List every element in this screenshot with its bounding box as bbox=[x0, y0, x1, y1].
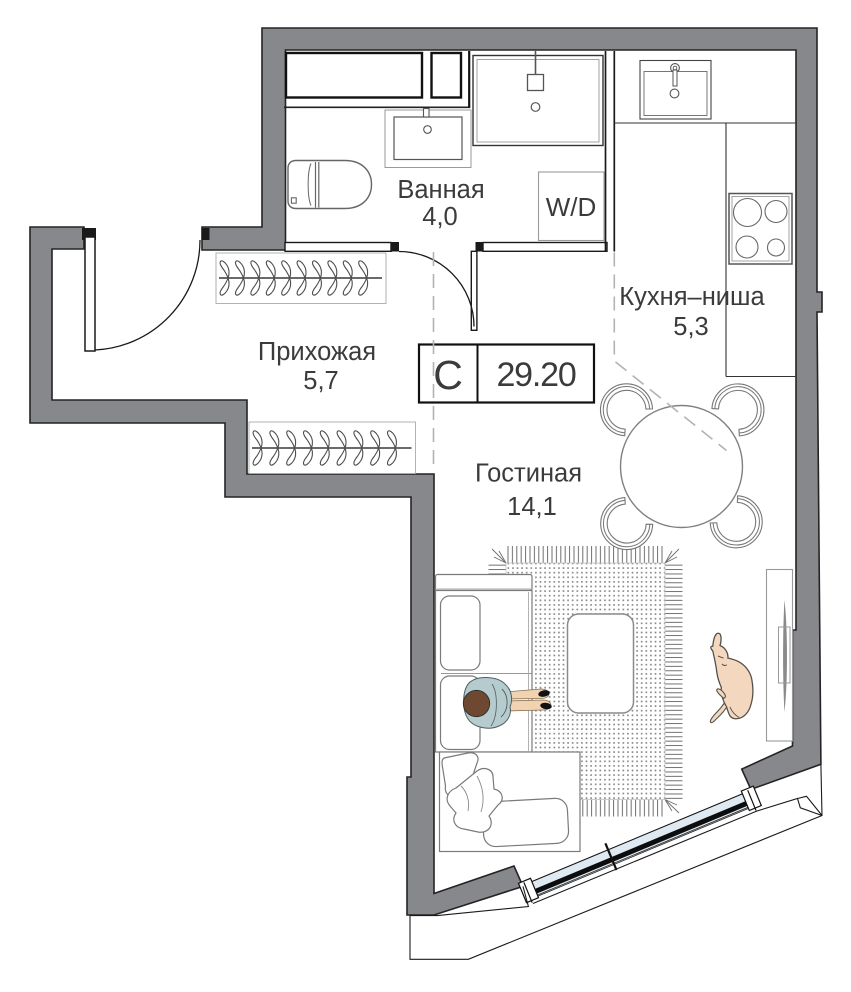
svg-text:29.20: 29.20 bbox=[496, 356, 575, 394]
svg-text:Гостиная: Гостиная bbox=[475, 460, 582, 488]
svg-text:5,3: 5,3 bbox=[673, 313, 708, 341]
svg-text:5,7: 5,7 bbox=[303, 367, 338, 395]
svg-text:14,1: 14,1 bbox=[507, 493, 557, 521]
svg-text:Кухня–ниша: Кухня–ниша bbox=[619, 283, 765, 311]
svg-text:Ванная: Ванная bbox=[397, 176, 484, 204]
svg-text:4,0: 4,0 bbox=[422, 203, 457, 231]
svg-text:C: C bbox=[433, 352, 463, 398]
svg-text:Прихожая: Прихожая bbox=[258, 338, 376, 366]
svg-text:W/D: W/D bbox=[546, 192, 597, 222]
